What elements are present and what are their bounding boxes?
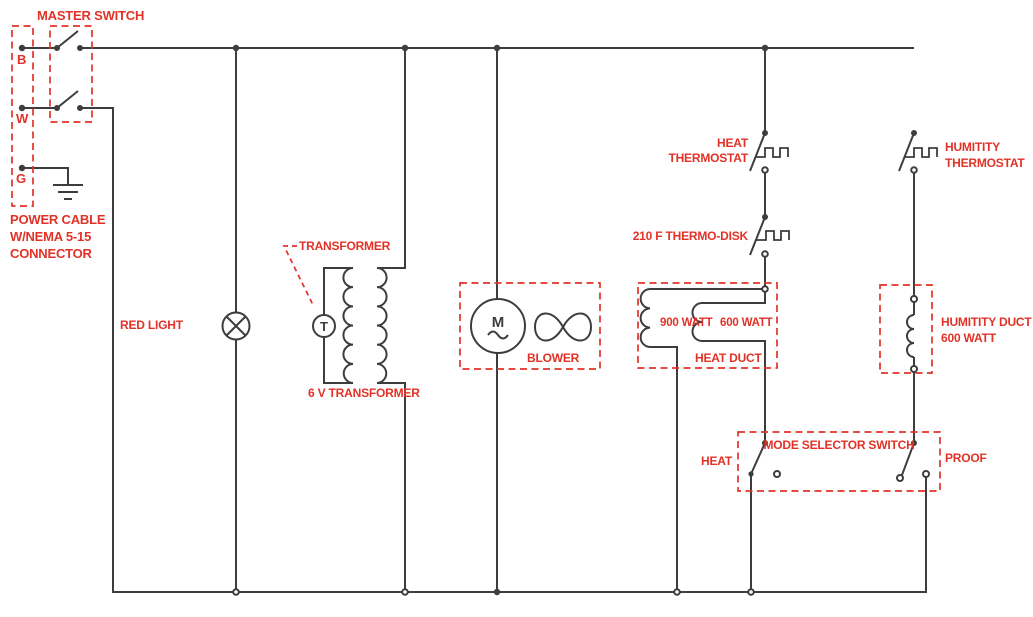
blower-label: BLOWER bbox=[527, 351, 579, 365]
mode-selector-label: MODE SELECTOR SWITCH bbox=[748, 438, 930, 452]
power-cable-label: POWER CABLE W/NEMA 5-15 CONNECTOR bbox=[10, 211, 105, 262]
humidity-branch bbox=[899, 130, 937, 443]
terminal-b-label: B bbox=[17, 53, 26, 67]
heat-duct-label: HEAT DUCT bbox=[695, 351, 762, 365]
transformer-branch: T bbox=[313, 48, 405, 592]
humidity-duct-label: HUMITITY DUCT 600 WATT bbox=[941, 315, 1032, 346]
mode-selector-switch-icon bbox=[748, 440, 929, 592]
transformer-letter: T bbox=[320, 319, 328, 334]
transformer-label: TRANSFORMER bbox=[299, 239, 390, 253]
blower-branch: M bbox=[471, 48, 591, 592]
humidity-thermostat-label: HUMITITY THERMOSTAT bbox=[945, 139, 1025, 171]
red-light-branch bbox=[223, 48, 250, 592]
humidity-duct-box bbox=[880, 285, 932, 373]
wiring-svg: T M bbox=[0, 0, 1033, 617]
humidity-heating-element bbox=[907, 296, 917, 372]
motor-icon: M bbox=[471, 299, 525, 353]
heat-element-right-label: 600 WATT bbox=[720, 316, 773, 330]
thermo-disk-label: 210 F THERMO-DISK bbox=[598, 229, 748, 243]
fan-icon bbox=[535, 313, 591, 340]
heat-element-left-label: 900 WATT bbox=[660, 316, 713, 330]
mode-proof-label: PROOF bbox=[945, 451, 987, 465]
lamp-icon bbox=[223, 313, 250, 340]
humidity-thermostat-icon bbox=[899, 130, 937, 173]
master-switch-icon bbox=[54, 31, 83, 111]
thermo-disk-icon bbox=[750, 214, 789, 257]
circuit-diagram: T M bbox=[0, 0, 1033, 617]
transformer-rating-label: 6 V TRANSFORMER bbox=[308, 386, 420, 400]
neutral-wire bbox=[80, 108, 926, 592]
terminal-g-label: G bbox=[16, 172, 26, 186]
master-switch-label: MASTER SWITCH bbox=[37, 9, 144, 23]
heating-element-900w bbox=[641, 289, 650, 347]
mode-heat-label: HEAT bbox=[670, 454, 732, 468]
motor-letter: M bbox=[492, 314, 505, 331]
terminal-w-label: W bbox=[16, 112, 28, 126]
ground-icon bbox=[53, 185, 83, 199]
heat-thermostat-icon bbox=[750, 130, 788, 173]
heat-thermostat-label: HEAT THERMOSTAT bbox=[638, 136, 748, 166]
annotation-boxes bbox=[12, 26, 940, 491]
red-light-label: RED LIGHT bbox=[120, 318, 183, 332]
transformer-leader-line bbox=[284, 246, 314, 307]
